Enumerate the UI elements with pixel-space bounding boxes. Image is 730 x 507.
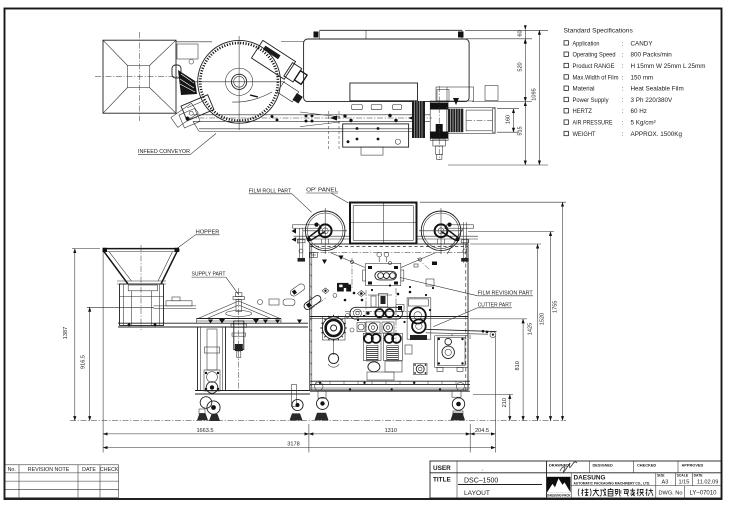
svg-text:A3: A3 <box>662 480 669 486</box>
svg-text:1663.5: 1663.5 <box>196 428 213 434</box>
svg-text:DATE: DATE <box>82 467 96 473</box>
svg-text:APPROVED: APPROVED <box>682 463 704 468</box>
svg-text:FILM ROLL PART: FILM ROLL PART <box>249 188 292 194</box>
svg-text:FILM REVISION PART: FILM REVISION PART <box>478 290 533 296</box>
svg-text:REVISION NOTE: REVISION NOTE <box>28 467 70 473</box>
svg-text:1520: 1520 <box>540 313 546 325</box>
svg-text:SIZE: SIZE <box>657 473 665 477</box>
svg-text:WEIGHT: WEIGHT <box>573 131 596 138</box>
svg-text:Operating Speed: Operating Speed <box>573 52 616 59</box>
svg-text:TITLE: TITLE <box>433 477 451 484</box>
svg-text:CUTTER PART: CUTTER PART <box>478 302 512 308</box>
svg-text:520: 520 <box>518 62 524 71</box>
svg-text:Product RANGE: Product RANGE <box>573 63 615 70</box>
svg-text::: : <box>622 86 624 93</box>
svg-text:CHECK: CHECK <box>100 467 119 473</box>
svg-text:CANDY: CANDY <box>631 40 654 47</box>
svg-text:SCALE: SCALE <box>677 473 689 477</box>
svg-text::: : <box>622 52 624 59</box>
svg-text:Standard Specifications: Standard Specifications <box>564 28 634 35</box>
svg-text::: : <box>622 63 624 70</box>
svg-text:1755: 1755 <box>553 301 559 313</box>
svg-text:210: 210 <box>502 398 508 407</box>
svg-text:DAESUNG PACK: DAESUNG PACK <box>547 494 571 498</box>
svg-text:HOPPER: HOPPER <box>196 229 220 235</box>
svg-text:1095: 1095 <box>532 88 538 100</box>
svg-text::: : <box>622 74 624 81</box>
svg-text:160: 160 <box>506 115 512 124</box>
svg-text:150 mm: 150 mm <box>631 74 654 81</box>
svg-text:DESIGNED: DESIGNED <box>593 463 614 468</box>
svg-text:60: 60 <box>518 30 524 36</box>
svg-text:60 Hz: 60 Hz <box>631 108 647 115</box>
svg-text::: : <box>622 40 624 47</box>
svg-text:DSC–1500: DSC–1500 <box>464 477 498 484</box>
svg-text:810: 810 <box>515 361 521 370</box>
svg-text:3178: 3178 <box>287 442 299 448</box>
svg-text:SUPPLY PART: SUPPLY PART <box>192 272 226 278</box>
svg-text:916.5: 916.5 <box>80 355 86 369</box>
svg-text:HERTZ: HERTZ <box>573 108 593 115</box>
svg-text:3 Ph 220/380V: 3 Ph 220/380V <box>631 97 673 104</box>
svg-text:1/15: 1/15 <box>679 480 690 486</box>
svg-text:AUTOMATIC PACKAGING MACHINERY: AUTOMATIC PACKAGING MACHINERY CO., LTD. <box>574 481 651 485</box>
svg-text:APPROX. 1500Kg: APPROX. 1500Kg <box>631 131 683 138</box>
svg-text:CHECKED: CHECKED <box>637 463 656 468</box>
svg-text:INFEED CONVEYOR: INFEED CONVEYOR <box>138 149 190 155</box>
svg-text::: : <box>622 108 624 115</box>
svg-text::: : <box>622 97 624 104</box>
svg-text:5 Kg/cm²: 5 Kg/cm² <box>631 120 656 127</box>
svg-text::: : <box>622 131 624 138</box>
svg-text:800 Packs/min: 800 Packs/min <box>631 52 673 59</box>
svg-text:OP’ PANEL: OP’ PANEL <box>306 188 339 194</box>
svg-text:204.5: 204.5 <box>475 428 489 434</box>
svg-text:Heat Sealable Film: Heat Sealable Film <box>631 86 684 93</box>
svg-text::: : <box>622 120 624 127</box>
svg-text:DRAWNED: DRAWNED <box>549 463 569 468</box>
svg-text:USER: USER <box>433 465 451 472</box>
svg-text:515: 515 <box>518 126 524 135</box>
svg-text:AIR PRESSURE: AIR PRESSURE <box>573 120 613 127</box>
svg-text:LY–07010: LY–07010 <box>690 490 718 496</box>
svg-text:Power Supply: Power Supply <box>573 97 610 104</box>
svg-text:DATE: DATE <box>694 473 704 477</box>
svg-text:1310: 1310 <box>385 428 397 434</box>
svg-text:11.02.09: 11.02.09 <box>697 480 718 486</box>
svg-text:Material: Material <box>573 86 595 93</box>
svg-text:Max.Width of Film: Max.Width of Film <box>573 74 619 81</box>
svg-text:H 15mm W 25mm L 25mm: H 15mm W 25mm L 25mm <box>631 63 706 70</box>
svg-text:LAYOUT: LAYOUT <box>464 490 490 497</box>
svg-text:No.: No. <box>8 467 16 473</box>
svg-text:DWG. No: DWG. No <box>659 490 683 496</box>
svg-text:1387: 1387 <box>63 327 69 339</box>
svg-text:1425: 1425 <box>527 323 533 335</box>
svg-text:Application: Application <box>573 40 600 47</box>
